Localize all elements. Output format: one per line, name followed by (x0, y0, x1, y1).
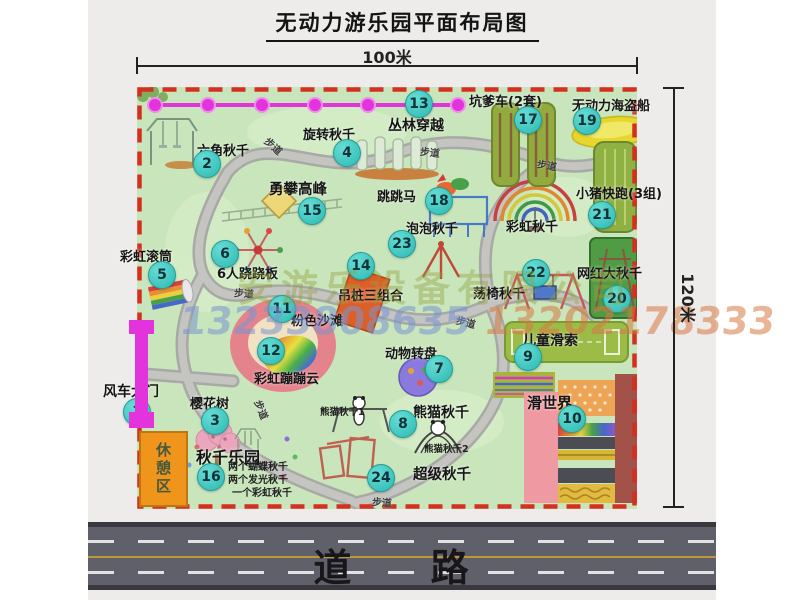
label-big-swing: 网红大秋千 (577, 263, 642, 282)
hexagon-swing-icon (147, 119, 197, 169)
marker-6: 6 (211, 240, 239, 268)
marker-4: 4 (333, 139, 361, 167)
label-panda-swing: 熊猫秋千 (413, 402, 469, 422)
label-swing-paradise-note-1: 两个蝴蝶秋千 (228, 461, 288, 474)
right-dimension-line (673, 88, 675, 508)
rest-area: 休憩区 (139, 431, 188, 507)
label-panda-swing-2: 熊猫秋千2 (424, 441, 469, 455)
label-rainbow-swing: 彩虹秋千 (506, 216, 558, 235)
marker-14: 14 (347, 252, 375, 280)
path-label: 步道 (234, 284, 255, 300)
marker-5: 5 (148, 261, 176, 289)
road-label: 道 路 (88, 537, 716, 592)
marker-12: 12 (257, 337, 285, 365)
playground-layout-map: 无动力游乐园平面布局图 100米 120米 (0, 0, 800, 600)
rest-area-label: 休憩区 (153, 442, 174, 496)
marker-9: 9 (514, 343, 542, 371)
label-piggy-run: 小猪快跑(3组) (576, 183, 662, 202)
path-label: 步道 (536, 155, 558, 173)
label-rainbow-bounce-cloud: 彩虹蹦蹦云 (254, 368, 319, 387)
path-label: 步道 (372, 493, 393, 509)
label-hanging-post-combo: 吊桩三组合 (338, 285, 403, 304)
marker-15: 15 (298, 197, 326, 225)
marker-7: 7 (425, 355, 453, 383)
label-panda-swing-1: 熊猫秋千1 (320, 404, 365, 418)
marker-8: 8 (389, 410, 417, 438)
marker-21: 21 (588, 201, 616, 229)
label-swing-paradise-note-2: 两个发光秋千 (228, 474, 288, 487)
label-jungle-crossing: 丛林穿越 (388, 115, 444, 135)
height-dimension-label: 120米 (677, 273, 701, 322)
label-climbing-peak: 勇攀高峰 (269, 178, 327, 199)
bubble-swing-icon (423, 241, 459, 279)
label-jumping-horse: 跳跳马 (377, 186, 416, 205)
marker-2: 2 (193, 150, 221, 178)
super-swing-icon (320, 437, 375, 478)
marker-24: 24 (367, 464, 395, 492)
marker-20: 20 (603, 285, 631, 313)
windmill-gate-icon (129, 320, 154, 334)
marker-13: 13 (405, 90, 433, 118)
marker-23: 23 (388, 230, 416, 258)
marker-17: 17 (514, 106, 542, 134)
page-title-text: 无动力游乐园平面布局图 (266, 7, 539, 42)
label-bubble-swing: 泡泡秋千 (406, 218, 458, 237)
road: 道 路 (88, 522, 716, 590)
label-super-swing: 超级秋千 (413, 463, 471, 484)
label-swing-chair: 荡椅秋千 (473, 283, 525, 302)
marker-11: 11 (268, 295, 296, 323)
right-dimension-tick-bottom (663, 506, 684, 508)
marker-22: 22 (522, 259, 550, 287)
marker-16: 16 (197, 463, 225, 491)
path-label: 步道 (419, 143, 440, 160)
windmill-gate-base (129, 412, 154, 428)
marker-3: 3 (201, 407, 229, 435)
page-title: 无动力游乐园平面布局图 (88, 7, 716, 42)
windmill-gate-post (135, 334, 148, 412)
marker-10: 10 (558, 405, 586, 433)
marker-19: 19 (573, 107, 601, 135)
label-pink-beach: 粉色沙滩 (291, 310, 343, 329)
label-swing-paradise-note-3: 一个彩虹秋千 (232, 487, 292, 500)
width-dimension-label: 100米 (137, 44, 637, 68)
marker-18: 18 (425, 187, 453, 215)
right-dimension-tick-top (663, 87, 684, 89)
